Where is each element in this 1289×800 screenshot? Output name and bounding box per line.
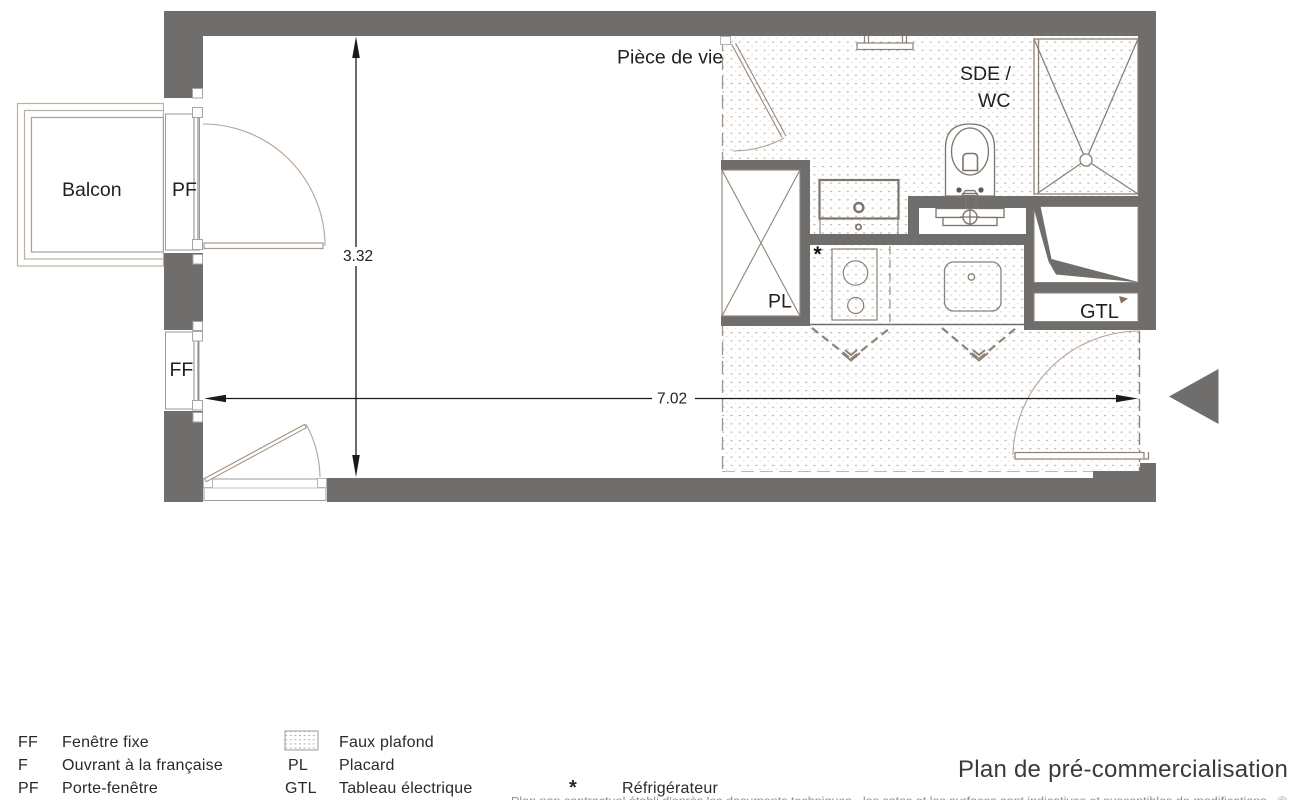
svg-text:PL: PL <box>768 291 792 313</box>
svg-text:PL: PL <box>288 757 308 774</box>
svg-text:GTL: GTL <box>285 780 317 797</box>
svg-text:Pièce de vie: Pièce de vie <box>617 47 723 69</box>
svg-text:GTL: GTL <box>1080 301 1119 323</box>
svg-text:3.32: 3.32 <box>343 248 373 265</box>
svg-text:F: F <box>18 757 28 774</box>
svg-text:Plan de pré-commercialisation: Plan de pré-commercialisation <box>958 756 1288 783</box>
svg-text:Réfrigérateur: Réfrigérateur <box>622 780 718 797</box>
svg-text:SDE /: SDE / <box>960 63 1012 85</box>
svg-text:Plan non contractuel établi d': Plan non contractuel établi d'après les … <box>511 796 1287 800</box>
svg-text:PF: PF <box>172 179 197 201</box>
svg-text:Placard: Placard <box>339 757 395 774</box>
svg-text:Porte-fenêtre: Porte-fenêtre <box>62 780 158 797</box>
svg-text:*: * <box>814 243 823 266</box>
svg-text:Tableau électrique: Tableau électrique <box>339 780 472 797</box>
svg-text:Fenêtre fixe: Fenêtre fixe <box>62 734 149 751</box>
svg-text:WC: WC <box>978 90 1011 112</box>
svg-text:Ouvrant à la française: Ouvrant à la française <box>62 757 223 774</box>
svg-text:PF: PF <box>18 780 39 797</box>
svg-text:FF: FF <box>18 734 38 751</box>
svg-text:FF: FF <box>170 359 194 381</box>
svg-text:7.02: 7.02 <box>657 391 687 408</box>
svg-text:Faux plafond: Faux plafond <box>339 734 434 751</box>
svg-text:Balcon: Balcon <box>62 179 122 201</box>
